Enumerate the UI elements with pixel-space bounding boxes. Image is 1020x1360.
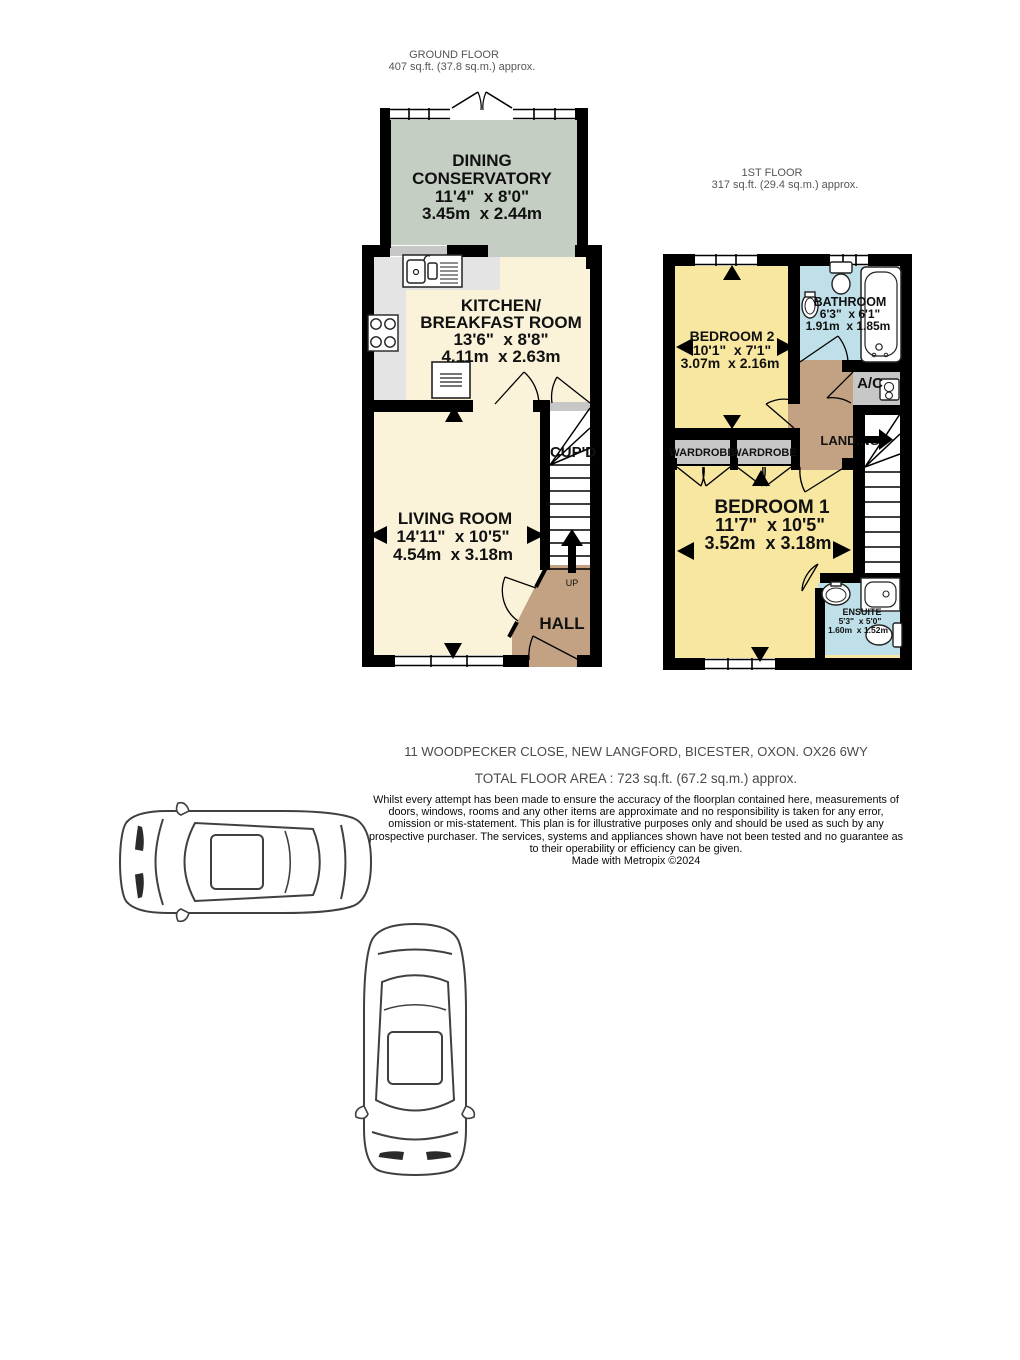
wall bbox=[577, 655, 602, 667]
wall bbox=[868, 254, 912, 266]
total-floor-area: TOTAL FLOOR AREA : 723 sq.ft. (67.2 sq.m… bbox=[366, 771, 906, 786]
label-living-metric: 4.54m x 3.18m bbox=[393, 545, 513, 564]
room-landing bbox=[800, 362, 853, 465]
oven-icon bbox=[432, 362, 470, 398]
label-bedroom1-metric: 3.52m x 3.18m bbox=[704, 533, 831, 553]
french-doors-icon bbox=[452, 92, 512, 110]
wall bbox=[663, 428, 800, 440]
floorplan-graphic: GROUND FLOOR 407 sq.ft. (37.8 sq.m.) app… bbox=[0, 0, 1020, 1360]
window-bedroom1 bbox=[705, 658, 775, 670]
window-conservatory-left bbox=[390, 108, 450, 120]
label-dining-2: CONSERVATORY bbox=[412, 169, 552, 188]
front-door-gap bbox=[529, 655, 577, 667]
wall bbox=[380, 108, 391, 248]
wall bbox=[663, 458, 677, 470]
label-living: LIVING ROOM bbox=[398, 509, 512, 528]
wall bbox=[362, 245, 374, 667]
doorway-bedroom1 bbox=[800, 458, 845, 470]
label-ensuite-metric: 1.60m x 1.52m bbox=[828, 625, 888, 635]
sink-unit-icon bbox=[403, 255, 462, 287]
wall bbox=[362, 655, 395, 667]
wall bbox=[730, 458, 738, 470]
wall bbox=[663, 254, 695, 266]
toilet-icon bbox=[830, 262, 852, 294]
doorway-bathroom bbox=[800, 360, 842, 372]
car-top-view-horizontal bbox=[120, 803, 371, 922]
label-bedroom1-imperial: 11'7" x 10'5" bbox=[715, 515, 825, 535]
wall bbox=[788, 254, 800, 404]
wall bbox=[575, 108, 588, 120]
footer-text-block: 11 WOODPECKER CLOSE, NEW LANGFORD, BICES… bbox=[366, 744, 906, 867]
ground-floor-plan: GROUND FLOOR 407 sq.ft. (37.8 sq.m.) app… bbox=[362, 49, 602, 667]
label-bathroom-metric: 1.91m x 1.85m bbox=[806, 319, 891, 333]
first-floor-plan: 1ST FLOOR 317 sq.ft. (29.4 sq.m.) approx… bbox=[663, 167, 912, 670]
label-wardrobe-left: WARDROBE bbox=[669, 447, 734, 459]
property-address: 11 WOODPECKER CLOSE, NEW LANGFORD, BICES… bbox=[366, 744, 906, 759]
label-airing-cupboard: A/C bbox=[857, 375, 883, 392]
label-wardrobe-right: WARDROBE bbox=[731, 447, 796, 459]
ensuite-basin-icon bbox=[822, 582, 850, 605]
stair-landing-strip bbox=[550, 402, 590, 411]
window-bedroom2 bbox=[695, 254, 757, 266]
wall bbox=[900, 254, 912, 670]
wall bbox=[540, 400, 550, 570]
label-cupboard: CUP'D bbox=[550, 444, 596, 461]
wall bbox=[590, 255, 602, 667]
label-dining-metric: 3.45m x 2.44m bbox=[422, 204, 542, 223]
label-dining-1: DINING bbox=[452, 151, 512, 170]
doorway-conservatory-kitchen bbox=[488, 245, 575, 257]
wall bbox=[577, 108, 588, 248]
first-floor-area: 317 sq.ft. (29.4 sq.m.) approx. bbox=[712, 179, 859, 191]
label-bedroom2-metric: 3.07m x 2.16m bbox=[681, 355, 780, 371]
disclaimer: Whilst every attempt has been made to en… bbox=[366, 794, 906, 855]
ground-floor-area: 407 sq.ft. (37.8 sq.m.) approx. bbox=[389, 61, 536, 73]
window-conservatory-right bbox=[513, 108, 575, 120]
ground-floor-title: GROUND FLOOR bbox=[409, 49, 499, 61]
floorplan-page: GROUND FLOOR 407 sq.ft. (37.8 sq.m.) app… bbox=[0, 0, 1020, 1360]
label-up: UP bbox=[566, 578, 579, 588]
wall bbox=[663, 658, 705, 670]
first-floor-title: 1ST FLOOR bbox=[742, 167, 803, 179]
wall bbox=[775, 658, 912, 670]
label-hall: HALL bbox=[539, 614, 584, 633]
label-living-imperial: 14'11" x 10'5" bbox=[396, 527, 509, 546]
wall bbox=[503, 655, 529, 667]
wall bbox=[853, 465, 865, 573]
car-top-view-vertical bbox=[356, 924, 475, 1175]
hob-icon bbox=[368, 315, 398, 351]
wall bbox=[380, 108, 390, 120]
credit-line: Made with Metropix ©2024 bbox=[366, 855, 906, 867]
wall bbox=[791, 458, 800, 470]
window-living-room bbox=[395, 655, 503, 667]
label-kitchen-metric: 4.11m x 2.63m bbox=[441, 347, 560, 366]
